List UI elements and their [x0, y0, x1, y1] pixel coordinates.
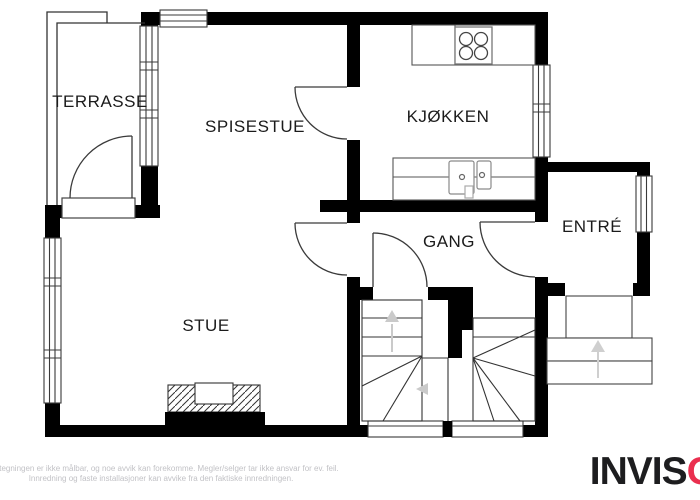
- disclaimer-line1: Plantegningen er ikke målbar, og noe avv…: [0, 464, 352, 474]
- room-label-gang: GANG: [423, 232, 475, 251]
- door-stue-gang: [295, 223, 347, 275]
- window-stair-bottom-left: [368, 421, 443, 437]
- stove-icon: [455, 27, 492, 64]
- room-label-terrasse: TERRASSE: [52, 92, 148, 111]
- floorplan-page: TERRASSE SPISESTUE KJØKKEN GANG ENTRÉ ST…: [0, 0, 700, 500]
- logo-text-black: INVIS: [590, 450, 687, 493]
- window-kjokken-right: [533, 65, 550, 157]
- window-stue-left: [44, 238, 61, 403]
- room-label-spisestue: SPISESTUE: [205, 117, 305, 136]
- room-label-kjokken: KJØKKEN: [407, 107, 490, 126]
- window-spisestue-top: [160, 10, 207, 27]
- door-terrasse: [70, 136, 132, 198]
- room-label-stue: STUE: [182, 316, 229, 335]
- stair-bottom-divider: [443, 421, 452, 437]
- disclaimer: Plantegningen er ikke målbar, og noe avv…: [0, 464, 352, 484]
- terrace-door-threshold: [62, 198, 135, 218]
- stairs-up-arrow-icon: [385, 310, 399, 352]
- disclaimer-line2: Innredning og faste installasjoner kan a…: [0, 474, 352, 484]
- inviso-logo: INVISO: [590, 450, 700, 494]
- door-gang-entre: [480, 222, 535, 277]
- window-entre-right: [636, 176, 652, 232]
- logo-letter-o: O: [687, 450, 700, 493]
- room-label-entre: ENTRÉ: [562, 217, 622, 236]
- fireplace-icon: [165, 383, 265, 427]
- door-gang-stairs: [373, 233, 427, 287]
- window-stair-bottom-right: [452, 421, 523, 437]
- floor-plan: TERRASSE SPISESTUE KJØKKEN GANG ENTRÉ ST…: [0, 0, 700, 500]
- sink-icon: [449, 161, 491, 198]
- entrance-porch: [547, 296, 652, 384]
